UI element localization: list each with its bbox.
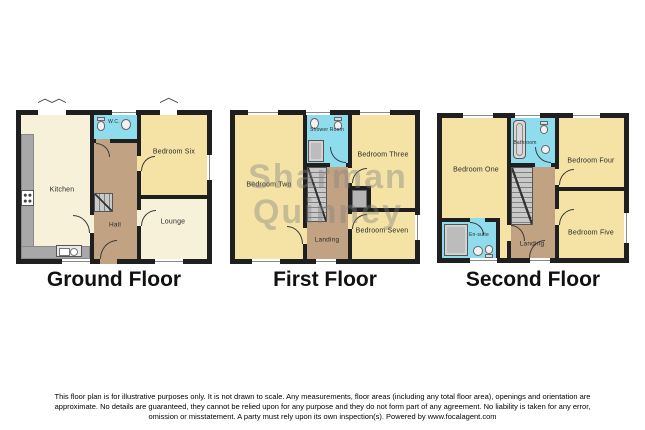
stairs <box>307 167 327 222</box>
window <box>155 259 183 264</box>
first-floor-plan: Bedroom Two Shower Room Bedroom Three La… <box>230 110 420 264</box>
shower-fixture <box>308 140 324 162</box>
room-label-bedroom-one: Bedroom One <box>453 167 499 174</box>
toilet-fixture <box>539 121 549 134</box>
window <box>470 258 497 263</box>
door-swing-mark <box>52 101 66 110</box>
toilet-fixture <box>484 245 494 258</box>
room-label-hall: Hall <box>109 222 121 229</box>
room-label-lounge: Lounge <box>161 219 186 226</box>
window <box>306 110 330 115</box>
room-label-ensuite: En-suite <box>469 232 489 238</box>
room-label-landing: Landing <box>520 241 545 248</box>
ground-floor-plan: Kitchen W.C. Bedroom Six Hall Lounge <box>16 110 212 264</box>
door-swing-mark <box>38 101 52 110</box>
door-swing-mark <box>160 101 177 110</box>
room-lounge <box>141 199 207 259</box>
basin-fixture <box>473 246 483 256</box>
window <box>112 110 136 115</box>
first-floor-title: First Floor <box>230 268 420 292</box>
toilet-fixture <box>96 117 106 131</box>
wall <box>367 186 371 208</box>
room-label-wc: W.C. <box>108 119 120 125</box>
cupboard <box>352 190 367 208</box>
shower-fixture <box>444 224 468 256</box>
room-label-shower-room: Shower Room <box>310 127 344 133</box>
wall <box>496 218 500 258</box>
room-label-bathroom: Bathroom <box>513 140 536 146</box>
window <box>530 258 550 263</box>
room-label-landing: Landing <box>315 237 340 244</box>
window <box>62 259 90 264</box>
window <box>207 155 212 180</box>
door-opening <box>535 163 551 167</box>
sink-fixture <box>56 245 82 257</box>
window <box>316 259 336 264</box>
front-door-opening <box>100 259 117 264</box>
room-label-bedroom-four: Bedroom Four <box>567 158 614 165</box>
disclaimer-text: This floor plan is for illustrative purp… <box>40 392 605 421</box>
window <box>463 113 493 118</box>
window <box>360 110 390 115</box>
basin-fixture <box>121 119 131 130</box>
room-label-bedroom-five: Bedroom Five <box>568 230 614 237</box>
door-opening <box>90 215 94 233</box>
window <box>515 113 540 118</box>
door-opening <box>330 163 346 167</box>
window <box>415 215 420 240</box>
room-label-bedroom-six: Bedroom Six <box>153 149 195 156</box>
window <box>248 110 278 115</box>
second-floor-plan: Bedroom One Bathroom Bedroom Four Landin… <box>437 113 629 263</box>
room-label-bedroom-seven: Bedroom Seven <box>356 228 409 235</box>
ground-floor-title: Ground Floor <box>16 268 212 292</box>
stairs <box>94 193 113 212</box>
room-label-bedroom-two: Bedroom Two <box>246 182 291 189</box>
second-floor-title: Second Floor <box>437 268 629 292</box>
window <box>573 113 600 118</box>
room-label-bedroom-three: Bedroom Three <box>357 152 408 159</box>
hob-fixture <box>21 190 34 206</box>
floorplan-image: Kitchen W.C. Bedroom Six Hall Lounge <box>0 0 645 430</box>
room-label-kitchen: Kitchen <box>50 187 75 194</box>
door-opening <box>303 228 307 244</box>
window <box>252 259 280 264</box>
window <box>624 213 629 243</box>
stairs <box>511 167 533 225</box>
